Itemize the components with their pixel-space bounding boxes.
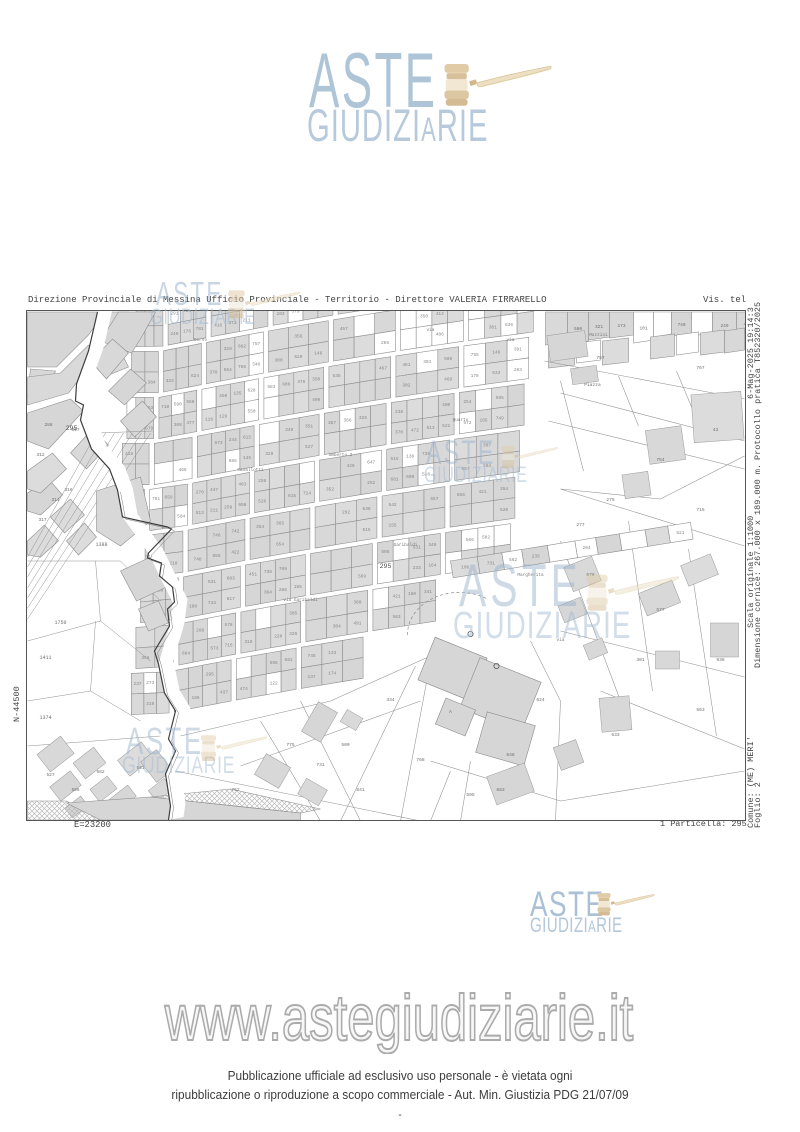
svg-text:318: 318 xyxy=(244,639,252,645)
svg-text:185: 185 xyxy=(294,584,302,590)
svg-text:738: 738 xyxy=(264,569,272,575)
svg-text:249: 249 xyxy=(720,323,728,329)
svg-text:515: 515 xyxy=(363,527,371,533)
svg-text:237: 237 xyxy=(134,681,142,687)
svg-text:564: 564 xyxy=(224,367,232,373)
svg-text:176: 176 xyxy=(183,329,191,335)
svg-text:314: 314 xyxy=(51,497,59,503)
svg-text:266: 266 xyxy=(381,340,389,346)
svg-text:341: 341 xyxy=(424,589,432,595)
svg-text:595: 595 xyxy=(496,395,504,401)
svg-text:422: 422 xyxy=(231,549,239,555)
svg-text:101: 101 xyxy=(639,326,647,332)
svg-text:429: 429 xyxy=(347,463,355,469)
svg-text:43: 43 xyxy=(713,427,719,433)
svg-text:751: 751 xyxy=(152,496,160,502)
svg-text:385: 385 xyxy=(289,610,297,616)
svg-text:1750: 1750 xyxy=(54,620,66,626)
svg-text:254: 254 xyxy=(463,399,471,405)
svg-text:356: 356 xyxy=(141,655,149,661)
svg-text:317: 317 xyxy=(38,517,46,523)
svg-text:527: 527 xyxy=(46,772,54,778)
svg-text:500: 500 xyxy=(341,742,350,748)
svg-text:356: 356 xyxy=(294,334,302,340)
svg-text:457: 457 xyxy=(340,326,348,332)
svg-text:421: 421 xyxy=(392,594,400,600)
svg-text:via Garibaldi: via Garibaldi xyxy=(283,598,318,603)
svg-text:531: 531 xyxy=(208,579,216,585)
svg-text:160: 160 xyxy=(408,591,416,597)
svg-text:513: 513 xyxy=(196,510,204,516)
svg-text:647: 647 xyxy=(367,460,375,466)
svg-text:767: 767 xyxy=(696,365,705,371)
svg-text:350: 350 xyxy=(312,376,320,382)
svg-text:654: 654 xyxy=(276,541,284,547)
svg-text:295: 295 xyxy=(66,425,78,432)
svg-text:316: 316 xyxy=(64,487,72,493)
svg-text:283: 283 xyxy=(514,367,522,373)
svg-text:566: 566 xyxy=(466,537,474,543)
svg-text:450: 450 xyxy=(219,393,227,399)
svg-text:135: 135 xyxy=(233,390,241,396)
svg-text:515: 515 xyxy=(391,456,399,462)
svg-text:513: 513 xyxy=(426,425,434,431)
svg-text:715: 715 xyxy=(225,643,233,649)
svg-text:301: 301 xyxy=(489,324,497,330)
svg-text:565: 565 xyxy=(270,660,278,666)
svg-text:155: 155 xyxy=(389,523,397,529)
svg-text:628: 628 xyxy=(248,388,256,394)
svg-text:301: 301 xyxy=(423,359,431,365)
svg-text:380: 380 xyxy=(473,311,481,312)
svg-text:467: 467 xyxy=(379,366,387,372)
svg-text:122: 122 xyxy=(270,680,278,686)
svg-text:133: 133 xyxy=(328,650,336,656)
svg-text:681: 681 xyxy=(285,657,293,663)
svg-text:259: 259 xyxy=(224,505,232,511)
svg-text:Garibaldi: Garibaldi xyxy=(394,543,418,548)
svg-text:472: 472 xyxy=(411,427,419,433)
svg-text:746: 746 xyxy=(212,532,220,538)
svg-text:A: A xyxy=(449,709,452,715)
svg-text:683: 683 xyxy=(227,576,235,582)
svg-text:145: 145 xyxy=(243,455,251,461)
svg-text:447: 447 xyxy=(210,487,218,493)
svg-text:326: 326 xyxy=(359,415,367,421)
svg-text:743: 743 xyxy=(208,600,216,606)
svg-text:Cavallotti: Cavallotti xyxy=(237,468,264,473)
svg-text:329: 329 xyxy=(265,451,273,457)
svg-text:292: 292 xyxy=(342,510,350,516)
svg-text:321: 321 xyxy=(595,324,603,330)
svg-text:749: 749 xyxy=(496,416,504,422)
svg-text:301: 301 xyxy=(636,657,645,663)
svg-text:233: 233 xyxy=(413,565,421,571)
svg-text:Quarto: Quarto xyxy=(453,418,469,423)
svg-text:354: 354 xyxy=(256,524,264,530)
svg-text:252: 252 xyxy=(367,480,375,486)
svg-text:775: 775 xyxy=(286,742,295,748)
svg-text:Mazzini: Mazzini xyxy=(589,333,608,338)
svg-text:563: 563 xyxy=(696,707,705,713)
svg-text:682: 682 xyxy=(238,344,246,350)
svg-text:304: 304 xyxy=(333,624,341,630)
svg-text:615: 615 xyxy=(288,493,296,499)
svg-text:463: 463 xyxy=(238,481,246,487)
svg-text:370: 370 xyxy=(395,430,403,436)
svg-text:502: 502 xyxy=(482,535,490,541)
svg-text:348: 348 xyxy=(252,362,260,368)
svg-text:288: 288 xyxy=(44,422,52,428)
svg-text:461: 461 xyxy=(402,362,410,368)
svg-text:620: 620 xyxy=(294,354,302,360)
svg-text:740: 740 xyxy=(677,322,685,328)
svg-text:584: 584 xyxy=(177,513,185,519)
svg-text:757: 757 xyxy=(252,341,260,347)
svg-text:520: 520 xyxy=(500,507,508,513)
svg-text:682: 682 xyxy=(96,769,104,775)
svg-text:745: 745 xyxy=(308,653,316,659)
svg-text:Corso: Corso xyxy=(194,338,208,343)
svg-text:295: 295 xyxy=(380,563,392,570)
svg-text:351: 351 xyxy=(305,424,313,430)
svg-text:349: 349 xyxy=(428,542,436,548)
svg-text:350: 350 xyxy=(420,313,428,319)
svg-text:129: 129 xyxy=(219,414,227,420)
svg-text:via: via xyxy=(507,338,515,343)
svg-text:486: 486 xyxy=(436,332,444,338)
svg-text:590: 590 xyxy=(174,402,182,408)
svg-text:681: 681 xyxy=(391,476,399,482)
svg-text:244: 244 xyxy=(229,437,237,443)
svg-text:249: 249 xyxy=(170,331,178,337)
svg-text:312: 312 xyxy=(36,452,44,458)
svg-text:1411: 1411 xyxy=(39,655,51,661)
svg-text:526: 526 xyxy=(258,498,266,504)
svg-text:Umberto I: Umberto I xyxy=(329,453,353,458)
svg-text:499: 499 xyxy=(312,397,320,403)
svg-text:521: 521 xyxy=(442,423,450,429)
svg-text:300: 300 xyxy=(274,358,282,364)
svg-text:557: 557 xyxy=(430,496,438,502)
svg-text:573: 573 xyxy=(210,645,218,651)
svg-text:686: 686 xyxy=(229,458,237,464)
svg-text:550: 550 xyxy=(248,408,256,414)
svg-text:556: 556 xyxy=(186,399,194,405)
svg-text:505: 505 xyxy=(381,549,389,555)
svg-text:936: 936 xyxy=(716,657,725,663)
svg-text:754: 754 xyxy=(656,457,665,463)
svg-text:164: 164 xyxy=(428,563,436,569)
svg-text:569: 569 xyxy=(358,574,366,580)
svg-text:334: 334 xyxy=(386,697,395,703)
svg-text:451: 451 xyxy=(249,572,257,578)
svg-text:275: 275 xyxy=(606,497,615,503)
svg-text:748: 748 xyxy=(194,557,202,563)
svg-text:752: 752 xyxy=(231,787,240,793)
svg-text:288: 288 xyxy=(196,627,204,633)
svg-text:769: 769 xyxy=(279,566,287,572)
svg-text:137: 137 xyxy=(308,674,316,680)
svg-text:173: 173 xyxy=(617,323,625,329)
svg-text:391: 391 xyxy=(514,347,522,353)
svg-text:659: 659 xyxy=(165,494,173,500)
svg-text:190: 190 xyxy=(189,603,197,609)
svg-text:606: 606 xyxy=(282,382,290,388)
svg-text:595: 595 xyxy=(466,792,475,798)
svg-text:376: 376 xyxy=(297,379,305,385)
svg-text:1388: 1388 xyxy=(95,542,107,548)
svg-text:178: 178 xyxy=(471,373,479,379)
svg-text:via: via xyxy=(427,328,435,333)
svg-text:474: 474 xyxy=(240,686,248,692)
svg-text:542: 542 xyxy=(389,502,397,508)
svg-text:116: 116 xyxy=(205,416,213,422)
svg-text:333: 333 xyxy=(166,378,174,384)
svg-text:270: 270 xyxy=(196,489,204,495)
svg-text:477: 477 xyxy=(186,420,194,426)
svg-text:583: 583 xyxy=(392,614,400,620)
svg-text:609: 609 xyxy=(406,474,414,480)
svg-text:696: 696 xyxy=(238,502,246,508)
svg-text:329: 329 xyxy=(224,346,232,352)
svg-text:364: 364 xyxy=(264,590,272,596)
svg-text:437: 437 xyxy=(220,689,228,695)
svg-text:288: 288 xyxy=(279,587,287,593)
svg-text:326: 326 xyxy=(289,631,297,637)
svg-text:624: 624 xyxy=(536,697,545,703)
svg-text:308: 308 xyxy=(174,422,182,428)
svg-text:378: 378 xyxy=(210,369,218,375)
svg-text:715: 715 xyxy=(696,507,705,513)
svg-text:535: 535 xyxy=(333,373,341,379)
svg-text:277: 277 xyxy=(576,522,585,528)
svg-text:273: 273 xyxy=(146,680,154,686)
svg-text:664: 664 xyxy=(182,651,190,657)
svg-text:146: 146 xyxy=(492,349,500,355)
svg-text:633: 633 xyxy=(611,732,620,738)
svg-text:421: 421 xyxy=(478,489,486,495)
svg-text:648: 648 xyxy=(506,752,515,758)
svg-text:710: 710 xyxy=(161,404,169,410)
svg-text:211: 211 xyxy=(210,507,218,513)
svg-text:533: 533 xyxy=(492,370,500,376)
svg-text:724: 724 xyxy=(303,491,311,497)
svg-text:414: 414 xyxy=(436,311,444,317)
svg-text:755: 755 xyxy=(471,352,479,358)
svg-text:645: 645 xyxy=(306,311,314,312)
svg-text:731: 731 xyxy=(316,762,325,768)
svg-text:757: 757 xyxy=(596,355,605,361)
svg-text:636: 636 xyxy=(505,322,513,328)
svg-text:295: 295 xyxy=(206,672,214,678)
svg-text:768: 768 xyxy=(416,757,425,763)
svg-text:387: 387 xyxy=(328,420,336,426)
svg-text:638: 638 xyxy=(363,506,371,512)
svg-text:583: 583 xyxy=(267,384,275,390)
svg-text:656: 656 xyxy=(457,492,465,498)
svg-text:766: 766 xyxy=(238,364,246,370)
svg-text:380: 380 xyxy=(353,600,361,606)
svg-text:841: 841 xyxy=(356,787,365,793)
svg-text:258: 258 xyxy=(258,478,266,484)
svg-text:Piazza: Piazza xyxy=(584,382,601,388)
svg-text:469: 469 xyxy=(444,377,452,383)
svg-text:220: 220 xyxy=(274,634,282,640)
svg-text:165: 165 xyxy=(480,418,488,424)
svg-text:352: 352 xyxy=(326,487,334,493)
svg-text:673: 673 xyxy=(215,440,223,446)
svg-text:490: 490 xyxy=(442,402,450,408)
svg-text:615: 615 xyxy=(243,435,251,441)
svg-text:365: 365 xyxy=(276,521,284,527)
svg-text:319: 319 xyxy=(146,701,154,707)
svg-text:146: 146 xyxy=(314,351,322,357)
svg-text:521: 521 xyxy=(676,530,684,536)
svg-text:655: 655 xyxy=(212,553,220,559)
svg-text:302: 302 xyxy=(402,383,410,389)
svg-text:578: 578 xyxy=(225,622,233,628)
svg-text:598: 598 xyxy=(71,787,79,793)
svg-text:238: 238 xyxy=(395,409,403,415)
svg-text:466: 466 xyxy=(179,467,187,473)
svg-text:204: 204 xyxy=(583,545,591,551)
svg-text:138: 138 xyxy=(406,454,414,460)
svg-text:491: 491 xyxy=(353,620,361,626)
svg-text:683: 683 xyxy=(496,787,505,793)
svg-text:617: 617 xyxy=(227,596,235,602)
svg-text:174: 174 xyxy=(328,670,336,676)
svg-text:624: 624 xyxy=(191,373,199,379)
svg-text:186: 186 xyxy=(192,695,200,701)
svg-text:527: 527 xyxy=(305,444,313,450)
svg-text:349: 349 xyxy=(285,427,293,433)
svg-text:366: 366 xyxy=(343,417,351,423)
svg-text:589: 589 xyxy=(444,356,452,362)
svg-text:742: 742 xyxy=(231,529,239,535)
svg-text:1374: 1374 xyxy=(39,715,51,721)
svg-text:384: 384 xyxy=(148,380,156,386)
